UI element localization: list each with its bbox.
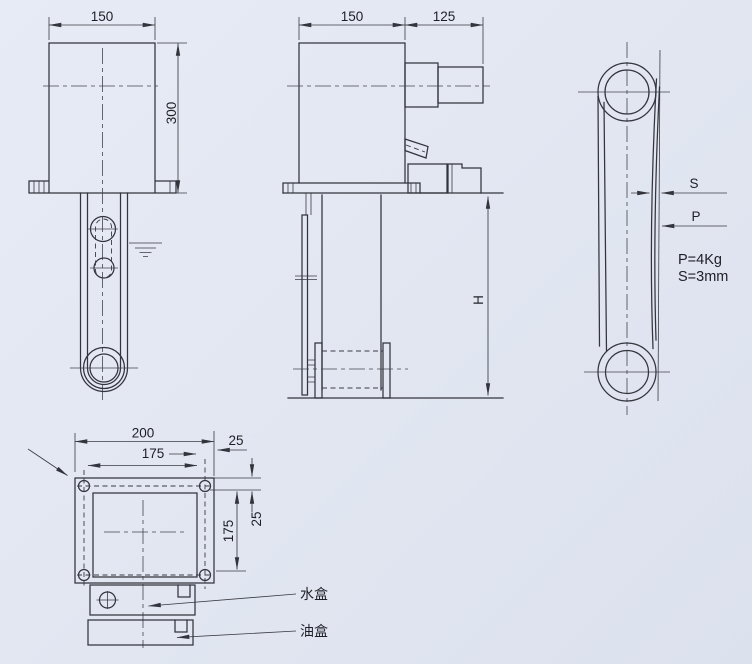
- hidden-roller: [322, 351, 383, 388]
- depth-value: H: [471, 295, 486, 305]
- oil-box-label: 油盒: [300, 623, 328, 639]
- oil-box-notch: [175, 620, 187, 632]
- motor-shaft: [287, 63, 490, 107]
- roller-bracket-left: [315, 343, 322, 398]
- hole-spacing-depth-value: 175: [221, 520, 236, 543]
- dim-force-P: P: [662, 209, 727, 226]
- edge-offset-value: 25: [228, 433, 243, 448]
- dim-height-300: 300: [157, 43, 187, 193]
- hidden-slot: [96, 219, 112, 278]
- dim-width-150: 150: [299, 9, 483, 64]
- side-view: 150 125: [283, 9, 503, 398]
- terminal-boxes: [408, 164, 481, 193]
- water-box-label: 水盒: [300, 586, 328, 602]
- motor-body: [283, 43, 503, 193]
- dim-width-150: 150: [49, 9, 155, 40]
- corner-hole-leader: [28, 449, 68, 476]
- body-outline: [93, 493, 197, 577]
- dim-deflection-S: S: [631, 176, 727, 193]
- base-plate: [75, 478, 214, 583]
- base-plan-view: 200 175 25 25 175: [28, 426, 328, 649]
- water-box-notch: [178, 585, 190, 597]
- belt-deflection-view: S P P=4Kg S=3mm: [578, 42, 728, 415]
- front-height-value: 300: [164, 102, 179, 125]
- front-width-value: 150: [91, 9, 114, 24]
- hole-spacing-value: 175: [142, 446, 165, 461]
- oil-box-leader: [177, 631, 296, 638]
- water-box-leader: [149, 594, 297, 606]
- force-spec: P=4Kg: [678, 252, 722, 268]
- water-level-symbol: [129, 243, 162, 257]
- pump-arm: [70, 193, 138, 391]
- oil-box: [88, 620, 193, 645]
- shaft-length-value: 125: [433, 9, 456, 24]
- edge-offset-depth-value: 25: [249, 511, 264, 526]
- dim-hole-span-175: 175: [88, 446, 197, 466]
- dim-shaft-125: 125: [405, 9, 483, 25]
- oil-spout: [405, 139, 428, 158]
- water-box: [90, 585, 195, 615]
- deflection-label: S: [689, 176, 698, 191]
- roller-bracket-right: [383, 343, 390, 398]
- force-label: P: [691, 209, 700, 224]
- side-width-value: 150: [341, 9, 364, 24]
- dim-edge-25: 25: [218, 433, 248, 450]
- front-view: 150 300: [29, 9, 187, 400]
- deflection-spec: S=3mm: [678, 269, 728, 285]
- technical-drawing: 150 300: [0, 0, 752, 664]
- side-bar: [302, 215, 308, 395]
- overall-width-value: 200: [132, 426, 155, 441]
- dim-depth-H: H: [471, 197, 488, 396]
- dim-vertical-175: 175: [216, 492, 246, 572]
